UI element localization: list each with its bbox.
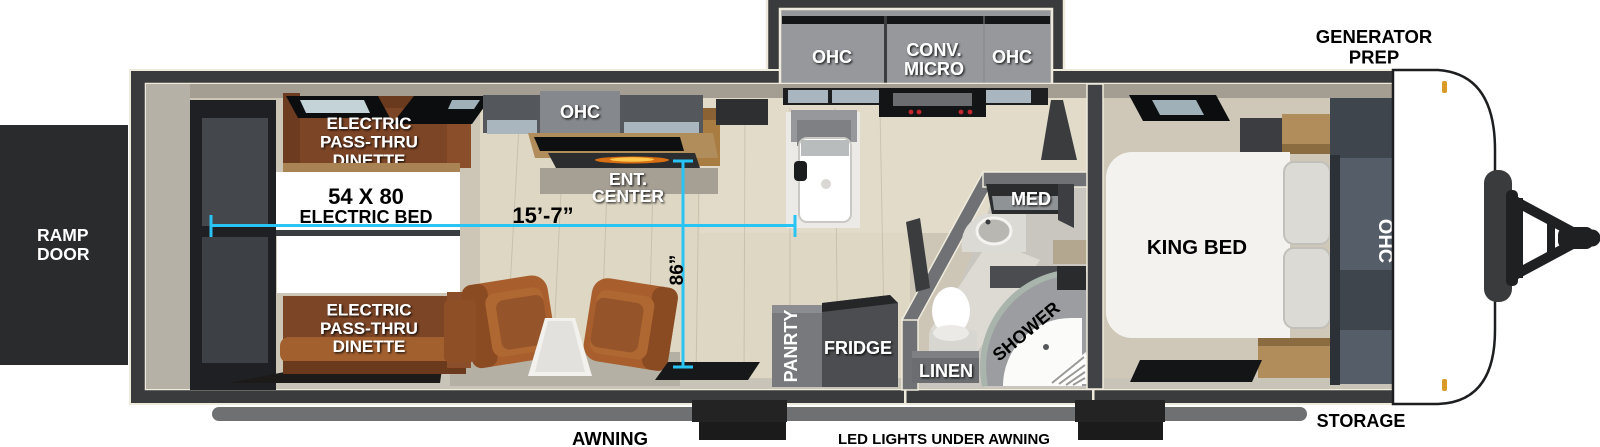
svg-text:GENERATOR: GENERATOR (1316, 26, 1433, 47)
svg-text:LINEN: LINEN (919, 361, 973, 381)
svg-text:86”: 86” (667, 255, 688, 286)
svg-text:MED: MED (1011, 189, 1051, 209)
svg-text:OHC: OHC (812, 47, 852, 67)
svg-text:PASS-THRU: PASS-THRU (320, 133, 418, 152)
svg-text:CENTER: CENTER (592, 186, 664, 206)
svg-text:CONV.: CONV. (906, 40, 961, 60)
svg-text:OHC: OHC (992, 47, 1032, 67)
svg-text:DOOR: DOOR (37, 244, 90, 264)
svg-text:FRIDGE: FRIDGE (824, 338, 892, 358)
svg-text:PANRTY: PANRTY (781, 310, 801, 383)
svg-text:PASS-THRU: PASS-THRU (320, 319, 418, 338)
svg-text:54 X 80: 54 X 80 (328, 184, 404, 209)
svg-text:STORAGE: STORAGE (1317, 411, 1406, 431)
svg-text:ELECTRIC: ELECTRIC (327, 301, 412, 320)
svg-text:MICRO: MICRO (904, 59, 964, 79)
svg-text:PREP: PREP (1349, 47, 1399, 68)
svg-text:RAMP: RAMP (37, 225, 89, 245)
svg-text:KING BED: KING BED (1147, 236, 1247, 259)
svg-text:15’-7”: 15’-7” (512, 203, 573, 228)
svg-text:AWNING: AWNING (572, 428, 648, 447)
svg-text:DINETTE: DINETTE (333, 337, 406, 356)
svg-text:OHC: OHC (560, 102, 600, 122)
svg-text:ELECTRIC: ELECTRIC (327, 114, 412, 133)
svg-text:LED LIGHTS UNDER AWNING: LED LIGHTS UNDER AWNING (838, 431, 1050, 447)
